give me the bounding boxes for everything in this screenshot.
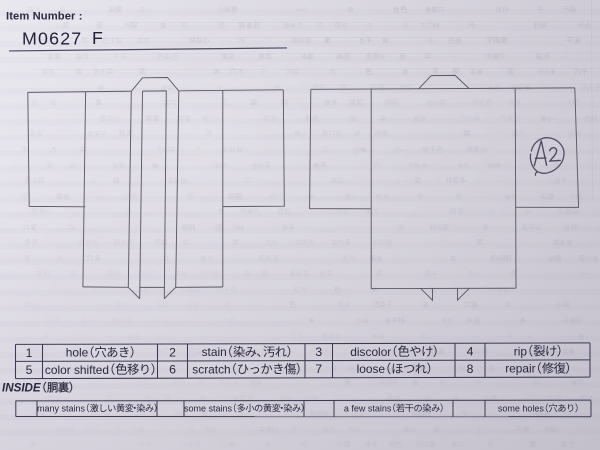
svg-text:many stains: many stains bbox=[37, 403, 86, 413]
svg-text:7: 7 bbox=[315, 362, 322, 376]
svg-text:color shifted: color shifted bbox=[45, 363, 109, 377]
svg-text:1: 1 bbox=[26, 346, 33, 360]
svg-text:loose: loose bbox=[357, 362, 386, 376]
svg-text:scratch: scratch bbox=[192, 362, 230, 376]
svg-text:F: F bbox=[92, 28, 103, 48]
svg-text:3: 3 bbox=[315, 345, 322, 359]
svg-text:8: 8 bbox=[467, 362, 474, 376]
svg-text:a few stains: a few stains bbox=[344, 403, 392, 413]
svg-text:INSIDE: INSIDE bbox=[2, 382, 42, 395]
svg-text:hole: hole bbox=[66, 346, 89, 360]
svg-text:some stains: some stains bbox=[184, 403, 233, 413]
svg-text:Item Number :: Item Number : bbox=[6, 11, 83, 23]
svg-text:discolor: discolor bbox=[350, 345, 391, 359]
svg-text:6: 6 bbox=[169, 363, 176, 377]
svg-text:M0627: M0627 bbox=[22, 29, 82, 49]
svg-text:some holes: some holes bbox=[498, 403, 545, 413]
svg-text:2: 2 bbox=[169, 345, 176, 359]
svg-text:5: 5 bbox=[26, 363, 33, 377]
svg-text:rip: rip bbox=[514, 344, 528, 358]
svg-text:4: 4 bbox=[467, 345, 474, 359]
svg-text:stain: stain bbox=[202, 345, 227, 359]
svg-text:repair: repair bbox=[505, 362, 535, 376]
